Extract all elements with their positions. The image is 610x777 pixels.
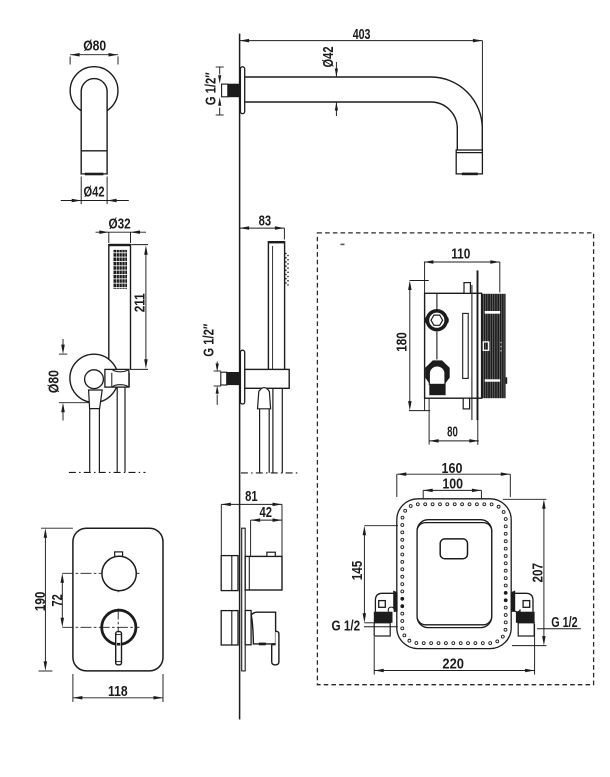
svg-text:207: 207 [531, 563, 547, 583]
svg-text:80: 80 [447, 425, 458, 441]
svg-text:42: 42 [260, 505, 273, 521]
svg-text:G 1/2: G 1/2 [332, 618, 361, 634]
svg-text:211: 211 [133, 293, 149, 312]
svg-text:83: 83 [259, 214, 272, 230]
svg-text:72: 72 [50, 594, 66, 606]
svg-text:180: 180 [395, 332, 411, 352]
svg-text:Ø42: Ø42 [321, 46, 337, 67]
svg-text:Ø80: Ø80 [83, 38, 106, 54]
svg-text:Ø42: Ø42 [84, 185, 105, 201]
svg-text:145: 145 [350, 561, 366, 581]
svg-text:G 1/2″: G 1/2″ [202, 324, 218, 357]
svg-text:110: 110 [451, 247, 470, 263]
svg-text:Ø32: Ø32 [109, 217, 131, 233]
svg-text:G 1/2″: G 1/2″ [204, 72, 220, 105]
svg-text:81: 81 [245, 489, 258, 505]
svg-text:Ø80: Ø80 [47, 370, 63, 393]
svg-text:220: 220 [442, 656, 464, 672]
svg-text:190: 190 [33, 592, 49, 612]
